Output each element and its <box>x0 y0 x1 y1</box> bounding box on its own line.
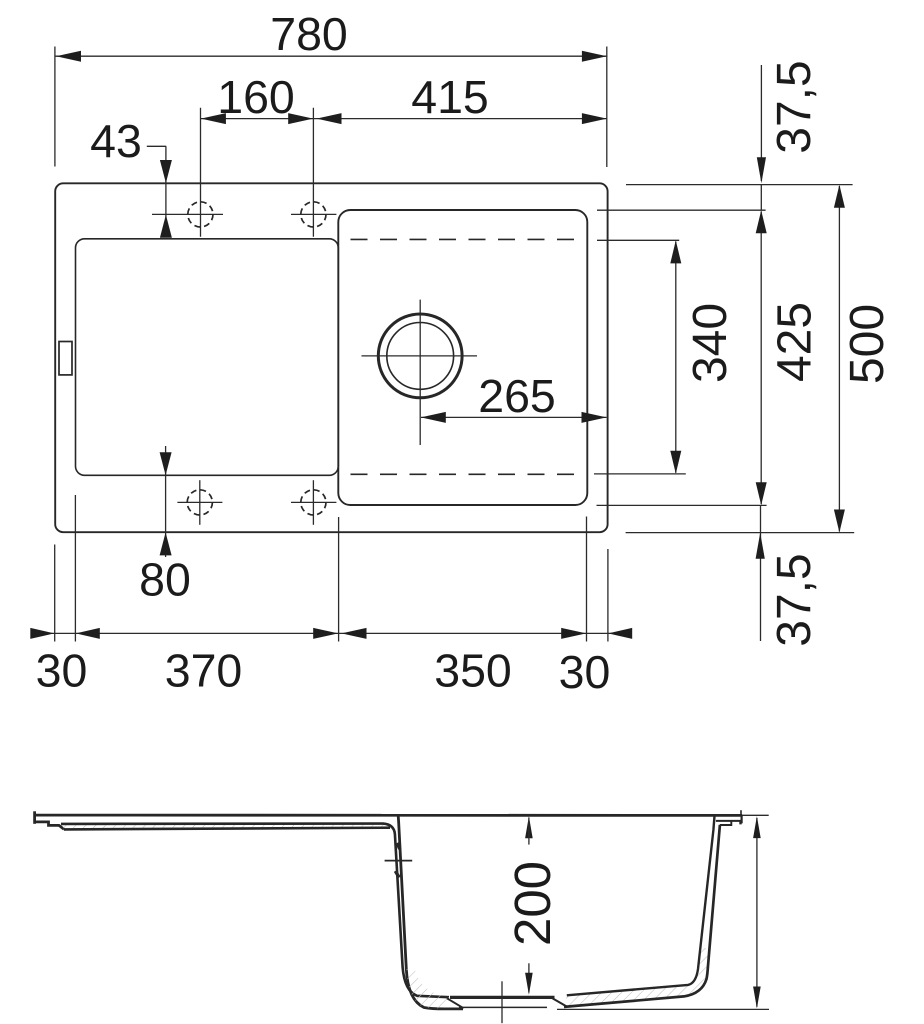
svg-text:415: 415 <box>411 71 489 123</box>
svg-text:43: 43 <box>90 115 142 167</box>
svg-text:30: 30 <box>36 644 88 696</box>
svg-text:37,5: 37,5 <box>768 60 821 153</box>
svg-text:340: 340 <box>684 303 737 383</box>
svg-text:80: 80 <box>139 554 191 606</box>
svg-text:780: 780 <box>270 8 348 60</box>
svg-text:160: 160 <box>217 71 295 123</box>
svg-text:265: 265 <box>478 370 556 422</box>
svg-text:425: 425 <box>769 302 822 382</box>
svg-text:500: 500 <box>841 304 894 384</box>
svg-text:200: 200 <box>504 861 561 946</box>
svg-text:30: 30 <box>559 646 611 698</box>
svg-text:370: 370 <box>165 644 243 696</box>
svg-text:37,5: 37,5 <box>768 553 821 646</box>
svg-text:350: 350 <box>434 644 512 696</box>
